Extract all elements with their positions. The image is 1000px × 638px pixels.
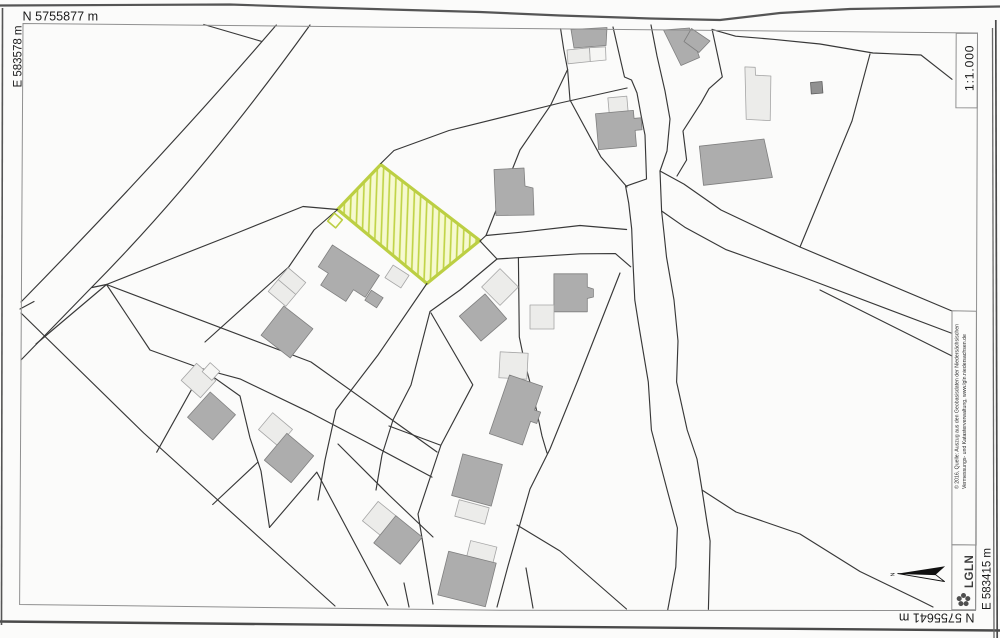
svg-text:N 5755877 m: N 5755877 m [23, 10, 99, 24]
svg-text:LGLN: LGLN [964, 555, 976, 588]
svg-text:© 2016, Quelle: Auszug aus den: © 2016, Quelle: Auszug aus den Geobasisd… [954, 324, 961, 489]
svg-text:N 5755641 m: N 5755641 m [899, 611, 975, 625]
svg-text:1:1.000: 1:1.000 [963, 45, 977, 91]
svg-text:Vermessungs- und Katasterverwa: Vermessungs- und Katasterverwaltung, www… [962, 334, 968, 489]
svg-text:E 583415 m: E 583415 m [982, 548, 994, 610]
svg-text:N: N [891, 573, 897, 577]
svg-text:E 583578 m: E 583578 m [12, 25, 24, 87]
